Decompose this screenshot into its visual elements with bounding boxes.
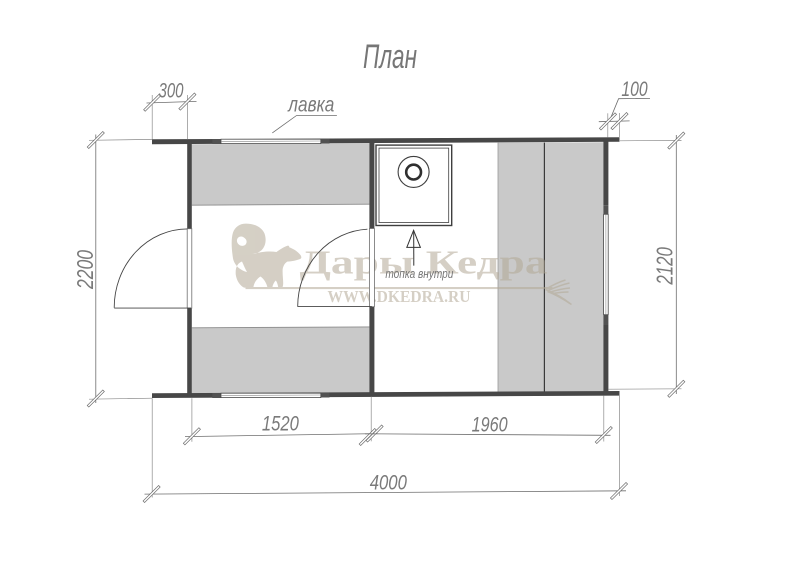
svg-text:План: План [363, 38, 417, 76]
svg-text:4000: 4000 [370, 472, 407, 495]
svg-text:100: 100 [621, 78, 648, 101]
svg-text:300: 300 [159, 80, 184, 103]
svg-text:2120: 2120 [652, 247, 678, 285]
svg-text:1960: 1960 [472, 414, 508, 437]
svg-text:топка внутри: топка внутри [385, 266, 453, 281]
svg-text:1520: 1520 [262, 413, 299, 436]
svg-text:WWW.DKEDRA.RU: WWW.DKEDRA.RU [328, 287, 471, 306]
svg-text:лавка: лавка [287, 94, 334, 117]
svg-text:2200: 2200 [72, 250, 98, 290]
